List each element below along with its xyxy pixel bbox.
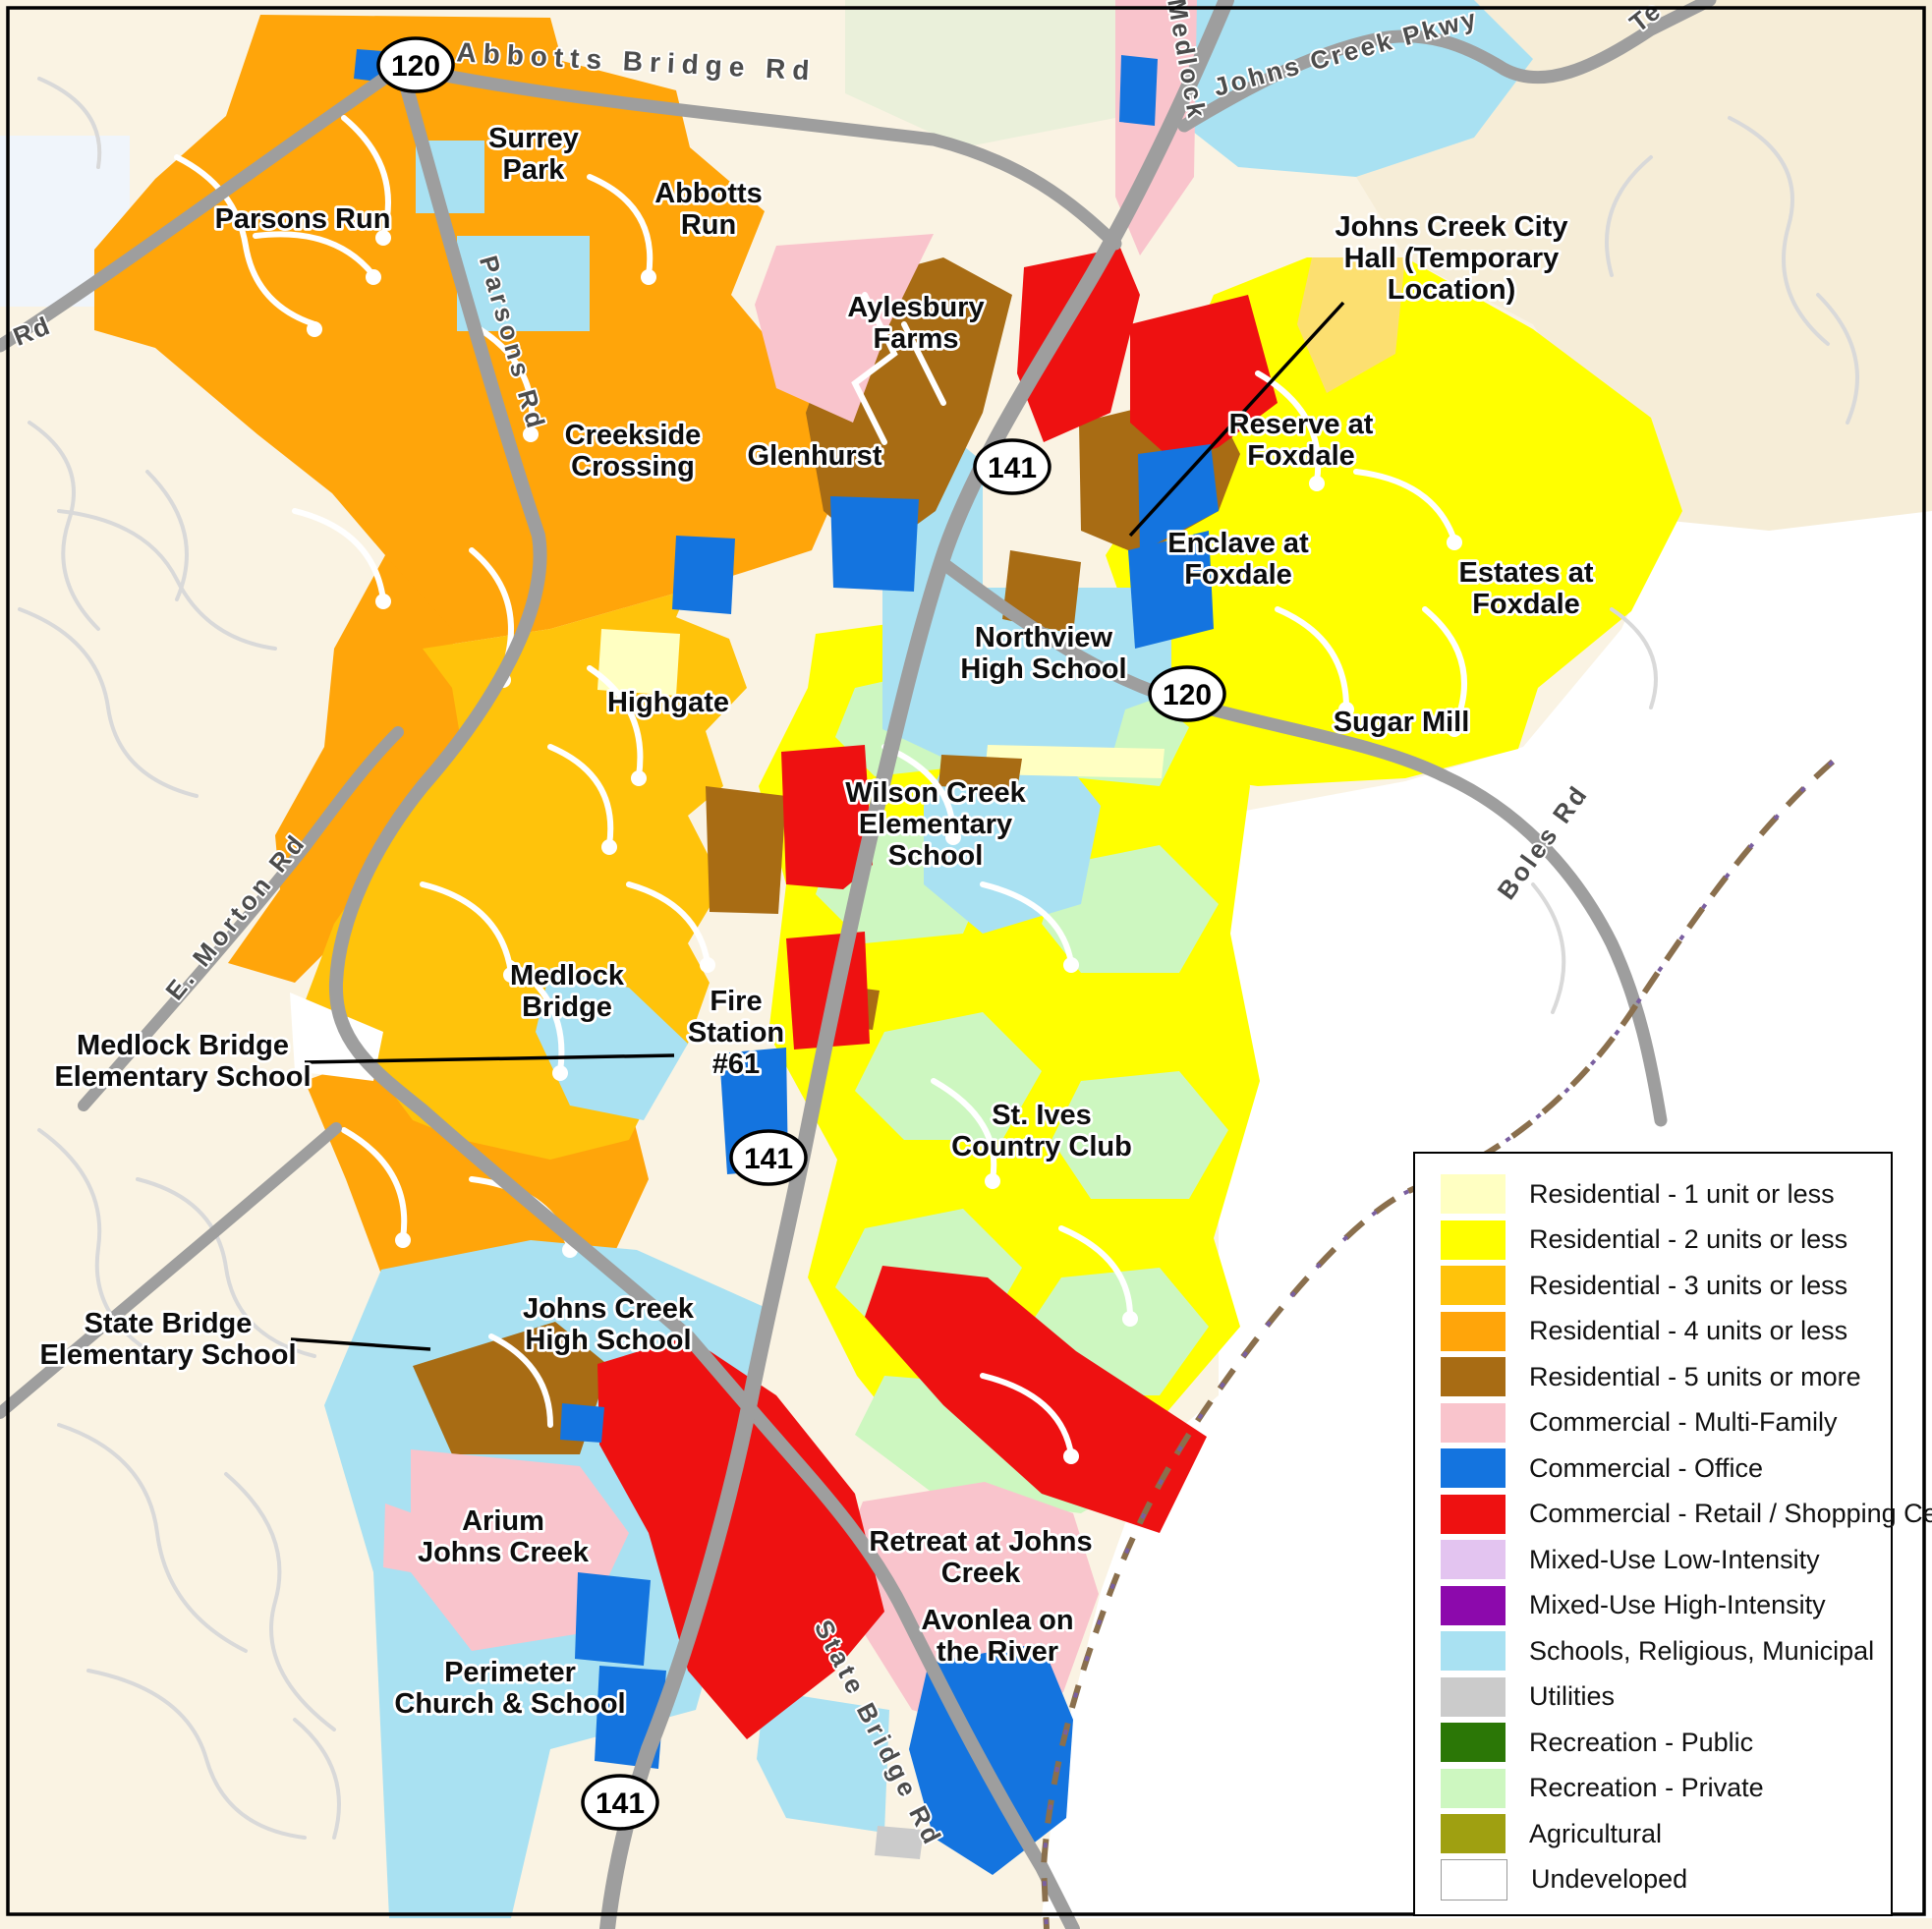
legend-swatch bbox=[1441, 1220, 1506, 1260]
place-label-avonlea-on-the-river: Avonlea onthe River bbox=[921, 1605, 1073, 1668]
legend-item: Utilities bbox=[1441, 1674, 1891, 1721]
legend-swatch bbox=[1441, 1312, 1506, 1351]
legend-swatch bbox=[1441, 1631, 1506, 1671]
legend-item: Recreation - Private bbox=[1441, 1766, 1891, 1812]
legend-item: Commercial - Retail / Shopping Centers bbox=[1441, 1492, 1891, 1538]
legend-item: Commercial - Office bbox=[1441, 1446, 1891, 1492]
legend: Residential - 1 unit or less Residential… bbox=[1413, 1152, 1893, 1916]
legend-label: Residential - 3 units or less bbox=[1529, 1271, 1847, 1301]
legend-label: Residential - 2 units or less bbox=[1529, 1224, 1847, 1255]
place-label-medlock-bridge: MedlockBridge bbox=[510, 960, 625, 1023]
legend-label: Residential - 5 units or more bbox=[1529, 1362, 1861, 1392]
legend-label: Commercial - Multi-Family bbox=[1529, 1407, 1838, 1438]
route-shield-120: 120 bbox=[1150, 667, 1224, 720]
route-shield-141: 141 bbox=[731, 1131, 806, 1184]
office-statebridge-1 bbox=[575, 1572, 651, 1666]
arium-pink-bump bbox=[383, 1503, 413, 1572]
office-141-mid-1 bbox=[830, 496, 919, 592]
place-label-johns-creek-high-school: Johns CreekHigh School bbox=[523, 1293, 695, 1356]
legend-swatch bbox=[1441, 1174, 1506, 1214]
place-label-parsons-run: Parsons Run bbox=[215, 203, 391, 235]
res5-wilson-strip bbox=[706, 786, 786, 914]
svg-text:120: 120 bbox=[1163, 679, 1212, 711]
place-label-estates-at-foxdale: Estates atFoxdale bbox=[1458, 557, 1593, 620]
place-label-reserve-at-foxdale: Reserve atFoxdale bbox=[1229, 409, 1374, 472]
svg-text:141: 141 bbox=[596, 1787, 645, 1820]
legend-item: Mixed-Use High-Intensity bbox=[1441, 1583, 1891, 1629]
office-141-mid-2 bbox=[672, 536, 735, 614]
legend-item: Residential - 4 units or less bbox=[1441, 1309, 1891, 1355]
legend-label: Residential - 1 unit or less bbox=[1529, 1179, 1835, 1210]
place-label-glenhurst: Glenhurst bbox=[748, 440, 882, 472]
legend-swatch bbox=[1441, 1677, 1506, 1717]
legend-label: Recreation - Private bbox=[1529, 1773, 1764, 1803]
legend-label: Commercial - Office bbox=[1529, 1453, 1763, 1484]
legend-label: Mixed-Use Low-Intensity bbox=[1529, 1545, 1820, 1575]
legend-item: Agricultural bbox=[1441, 1811, 1891, 1857]
legend-swatch bbox=[1441, 1357, 1506, 1396]
legend-item: Commercial - Multi-Family bbox=[1441, 1400, 1891, 1447]
legend-swatch bbox=[1441, 1814, 1506, 1853]
place-label-northview-high-school: NorthviewHigh School bbox=[960, 622, 1126, 685]
legend-label: Commercial - Retail / Shopping Centers bbox=[1529, 1499, 1932, 1529]
legend-label: Utilities bbox=[1529, 1681, 1615, 1712]
legend-label: Residential - 4 units or less bbox=[1529, 1316, 1847, 1346]
svg-text:120: 120 bbox=[391, 50, 440, 83]
legend-swatch bbox=[1441, 1723, 1506, 1762]
legend-item: Residential - 2 units or less bbox=[1441, 1218, 1891, 1264]
legend-item: Recreation - Public bbox=[1441, 1720, 1891, 1766]
place-label-medlock-bridge-elementary: Medlock BridgeElementary School bbox=[54, 1030, 311, 1093]
legend-label: Mixed-Use High-Intensity bbox=[1529, 1590, 1826, 1620]
legend-swatch bbox=[1441, 1769, 1506, 1808]
legend-swatch bbox=[1441, 1266, 1506, 1305]
legend-item: Residential - 3 units or less bbox=[1441, 1263, 1891, 1309]
legend-swatch bbox=[1441, 1586, 1506, 1625]
legend-swatch bbox=[1441, 1859, 1507, 1901]
place-label-sugar-mill: Sugar Mill bbox=[1334, 707, 1470, 738]
legend-item: Schools, Religious, Municipal bbox=[1441, 1628, 1891, 1674]
legend-item: Residential - 5 units or more bbox=[1441, 1354, 1891, 1400]
svg-text:141: 141 bbox=[744, 1143, 793, 1175]
legend-item: Residential - 1 unit or less bbox=[1441, 1171, 1891, 1218]
place-label-enclave-at-foxdale: Enclave atFoxdale bbox=[1167, 528, 1309, 591]
route-shield-141: 141 bbox=[975, 440, 1050, 493]
svg-text:141: 141 bbox=[988, 452, 1037, 484]
legend-label: Schools, Religious, Municipal bbox=[1529, 1636, 1874, 1667]
zoning-map-page: Abbotts Bridge RdRdParsons RdE. Morton R… bbox=[0, 0, 1932, 1929]
office-top-small bbox=[1119, 55, 1158, 126]
legend-label: Undeveloped bbox=[1531, 1864, 1687, 1895]
legend-swatch bbox=[1441, 1540, 1506, 1579]
route-shield-120: 120 bbox=[378, 38, 453, 91]
route-shield-141: 141 bbox=[583, 1776, 657, 1829]
legend-swatch bbox=[1441, 1495, 1506, 1534]
place-label-highgate: Highgate bbox=[607, 687, 729, 718]
legend-label: Recreation - Public bbox=[1529, 1728, 1753, 1758]
office-jchs bbox=[560, 1403, 604, 1443]
legend-item: Mixed-Use Low-Intensity bbox=[1441, 1537, 1891, 1583]
legend-swatch bbox=[1441, 1448, 1506, 1488]
legend-item: Undeveloped bbox=[1441, 1857, 1891, 1903]
place-label-creekside-crossing: CreeksideCrossing bbox=[565, 420, 702, 482]
legend-label: Agricultural bbox=[1529, 1819, 1662, 1849]
legend-swatch bbox=[1441, 1403, 1506, 1443]
